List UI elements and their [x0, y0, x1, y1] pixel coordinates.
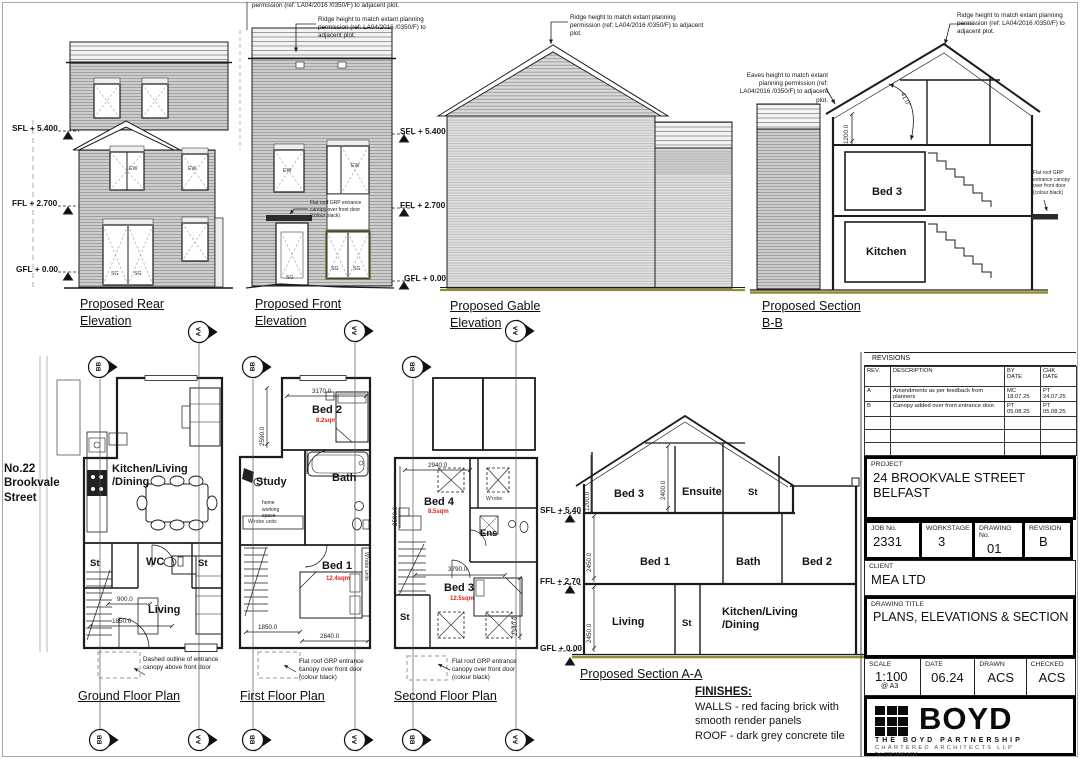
workstage-cell: WORKSTAGE3 [919, 520, 975, 560]
client-box: CLIENT MEA LTD [864, 560, 1076, 596]
level-gfl-aa: GFL + 0.00 [540, 643, 582, 653]
finishes-walls: WALLS - red facing brick with smooth ren… [695, 701, 855, 729]
room-label-kitchen-living: Kitchen/Living [112, 463, 188, 475]
note-eaves-bb: Eaves height to match extant planning pe… [733, 72, 828, 105]
room-label-st-left: St [90, 558, 100, 569]
title-block: REVISIONS REV. DESCRIPTION BYDATE CHKDAT… [864, 352, 1076, 757]
note-canopy-front: Flat roof GRP entrance canopy over front… [310, 200, 368, 220]
marker-bb: BB [410, 356, 417, 378]
area-label-bed2: 8.2sqm [316, 418, 337, 424]
room-label-living: Living [148, 604, 180, 616]
revisions-heading: REVISIONS [864, 352, 1076, 366]
room-label-wrobe: W'robe [486, 496, 502, 502]
marker-aa: AA [196, 729, 203, 751]
desc-col-header: DESCRIPTION [891, 367, 1005, 387]
window-label-ew: EW [188, 166, 196, 172]
dim-3170: 3170.0 [312, 388, 331, 395]
door-label-sg: SG [353, 266, 361, 272]
dim-3790: 3790.0 [448, 566, 467, 573]
room-label-bed3-plan: Bed 3 [444, 582, 474, 594]
dim-2340: 2340.0 [512, 617, 519, 636]
boyd-logo: BOYD THE BOYD PARTNERSHIP CHARTERED ARCH… [864, 696, 1076, 756]
date-cell: DATE06.24 [920, 658, 975, 696]
marker-bb: BB [250, 356, 257, 378]
room-label-dining: /Dining [112, 476, 149, 488]
dim-2840: 2840.0 [320, 633, 339, 640]
drawing-sheet: permission (ref: LA04/2016 /0350/F) to a… [0, 0, 1080, 759]
title-front-elevation: Proposed Front Elevation [255, 296, 355, 330]
revision-row: B Canopy added over front entrance door.… [865, 402, 1077, 417]
rev-col-header: REV. [865, 367, 891, 387]
level-ffl-aa: FFL + 2.70 [540, 576, 581, 586]
room-aa-st-top: St [748, 487, 758, 498]
boyd-logo-text: BOYD [919, 701, 1013, 737]
room-aa-bed3: Bed 3 [614, 488, 644, 500]
marker-bb: BB [250, 729, 257, 751]
title-gable-elevation: Proposed Gable Elevation [450, 298, 562, 332]
project-name: 24 BROOKVALE STREET BELFAST [867, 468, 1073, 500]
room-aa-st-ground: St [682, 618, 692, 629]
room-label-bed3-bb: Bed 3 [872, 186, 902, 198]
marker-aa: AA [352, 729, 359, 751]
door-label-sg: SG [111, 271, 119, 277]
window-label-ew: EW [283, 168, 291, 174]
level-sfl-rear: SFL + 5.400 [12, 123, 58, 133]
room-aa-bath: Bath [736, 556, 760, 568]
room-aa-ensuite: Ensuite [682, 486, 722, 498]
section-aa-linework [558, 416, 868, 665]
room-aa-bed2: Bed 2 [802, 556, 832, 568]
room-label-kitchen-bb: Kitchen [866, 246, 906, 258]
level-ffl-rear: FFL + 2.700 [12, 198, 57, 208]
dim-eaves-bb: 1200.0 [843, 125, 850, 144]
client-name: MEA LTD [865, 570, 1075, 587]
room-label-wc: WC [146, 556, 164, 568]
job-no-cell: JOB No.2331 [864, 520, 922, 560]
note-canopy-dashed: Dashed outline of entrance canopy above … [143, 656, 223, 672]
note-canopy-bb: Flat roof GRP entrance canopy over front… [1033, 170, 1078, 196]
scale-cell: SCALE 1:100 @ A3 [864, 658, 921, 696]
level-ffl-front: FFL + 2.700 [400, 200, 445, 210]
drawing-title: PLANS, ELEVATIONS & SECTION [867, 608, 1073, 624]
window-label-ew: EW [129, 166, 137, 172]
boyd-partnership-text: THE BOYD PARTNERSHIP [875, 737, 1023, 744]
dim-1850-ground: 1850.0 [112, 618, 131, 625]
revision-row: A Amendments as per feedback from planne… [865, 387, 1077, 402]
marker-bb: BB [97, 729, 104, 751]
area-label-bed3: 12.5sqm [450, 596, 474, 602]
note-ridge-front: Ridge height to match extant planning pe… [318, 16, 448, 41]
note-ridge-bb: Ridge height to match extant planning pe… [957, 12, 1077, 37]
label-wrobe-units-side: W'robe units [363, 552, 369, 581]
dim-2590-first: 2590.0 [259, 427, 266, 446]
dim-2590-second: 2590.0 [392, 507, 399, 526]
title-first-plan: First Floor Plan [240, 688, 325, 705]
room-label-bed1: Bed 1 [322, 560, 352, 572]
marker-aa: AA [352, 320, 359, 342]
note-canopy-second: Flat roof GRP entrance canopy over front… [452, 658, 534, 683]
drawn-cell: DRAWNACS [974, 658, 1026, 696]
marker-aa: AA [513, 320, 520, 342]
door-label-sg: SG [331, 266, 339, 272]
room-label-st-second: St [400, 612, 410, 623]
boyd-architects-text: CHARTERED ARCHITECTS LLP [875, 745, 1014, 751]
window-label-ew: EW [351, 163, 359, 169]
boyd-tel-text: Tel: 028 9046 1414 [875, 752, 918, 758]
project-box: PROJECT 24 BROOKVALE STREET BELFAST [864, 456, 1076, 520]
dim-2940: 2940.0 [428, 462, 447, 469]
revisions-table: REV. DESCRIPTION BYDATE CHKDATE A Amendm… [864, 366, 1077, 456]
note-ridge-partial: permission (ref: LA04/2016 /0350/F) to a… [252, 2, 422, 10]
note-home-working: home working space [262, 500, 292, 520]
room-label-bath: Bath [332, 472, 356, 484]
door-label-sg: SG [286, 275, 294, 281]
room-label-st-right: St [198, 558, 208, 569]
dim-aa-knee: 1200.0 [584, 492, 591, 511]
level-sfl-front: SFL + 5.400 [400, 126, 446, 136]
note-canopy-first: Flat roof GRP entrance canopy over front… [299, 658, 381, 683]
level-gfl-front: GFL + 0.00 [404, 273, 446, 283]
dim-900: 900.0 [117, 596, 133, 603]
room-aa-kitchen2: /Dining [722, 619, 759, 631]
title-ground-plan: Ground Floor Plan [78, 688, 180, 705]
room-label-ens: Ens [480, 528, 497, 539]
room-label-bed2: Bed 2 [312, 404, 342, 416]
level-gfl-rear: GFL + 0.00 [16, 264, 58, 274]
room-label-bed4: Bed 4 [424, 496, 454, 508]
door-label-sg: SG [134, 271, 142, 277]
revision-cell: REVISIONB [1022, 520, 1073, 560]
marker-aa: AA [513, 729, 520, 751]
chk-col-header: CHKDATE [1041, 367, 1077, 387]
drawing-no-cell: DRAWING No.01 [972, 520, 1025, 560]
note-ridge-gable: Ridge height to match extant planning pe… [570, 14, 705, 39]
ground-floor-plan-linework [40, 356, 222, 678]
title-rear-elevation: Proposed Rear Elevation [80, 296, 180, 330]
finishes-roof: ROOF - dark grey concrete tile [695, 730, 865, 744]
area-label-bed4: 8.5sqm [428, 509, 449, 515]
front-elevation-linework [240, 2, 414, 289]
marker-aa: AA [196, 321, 203, 343]
title-section-bb: Proposed Section B-B [762, 298, 870, 332]
title-section-aa: Proposed Section A-A [580, 666, 702, 683]
title-second-plan: Second Floor Plan [394, 688, 497, 705]
finishes-heading: FINISHES: [695, 686, 752, 698]
dim-1850-first: 1850.0 [258, 624, 277, 631]
boyd-logo-grid-icon [875, 706, 909, 736]
label-wrobe-units: W'robe units [248, 519, 277, 525]
room-label-study: Study [256, 476, 287, 488]
gable-elevation-linework [438, 22, 745, 290]
level-sfl-aa: SFL + 5.40 [540, 505, 581, 515]
checked-cell: CHECKEDACS [1026, 658, 1076, 696]
room-aa-kitchen1: Kitchen/Living [722, 606, 798, 618]
dim-aa-2450-ground: 2450.0 [586, 624, 593, 643]
first-floor-plan-linework [240, 376, 370, 679]
dim-aa-2450-first: 2450.0 [586, 553, 593, 572]
room-aa-living: Living [612, 616, 644, 628]
area-label-bed1: 12.4sqm [326, 576, 350, 582]
drawing-title-box: DRAWING TITLE PLANS, ELEVATIONS & SECTIO… [864, 596, 1076, 658]
marker-bb: BB [96, 356, 103, 378]
marker-bb: BB [410, 729, 417, 751]
street-label: No.22 Brookvale Street [4, 462, 74, 505]
room-aa-bed1: Bed 1 [640, 556, 670, 568]
by-col-header: BYDATE [1005, 367, 1041, 387]
dim-aa-2400: 2400.0 [660, 481, 667, 500]
